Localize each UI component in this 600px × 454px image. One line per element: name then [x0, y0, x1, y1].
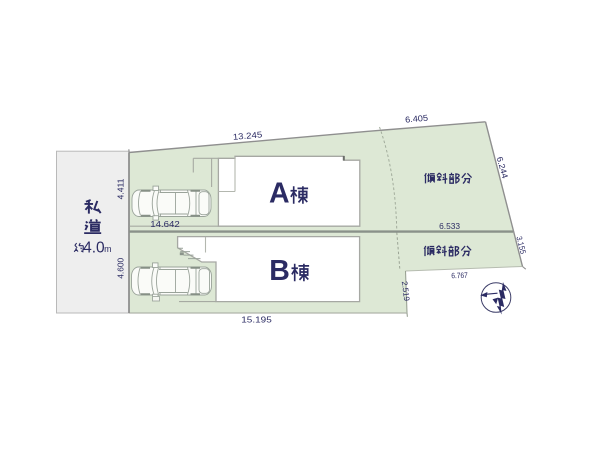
svg-text:A: A: [269, 178, 290, 210]
svg-text:4.411: 4.411: [116, 178, 126, 199]
svg-text:15.195: 15.195: [241, 315, 272, 325]
svg-text:14.642: 14.642: [150, 219, 180, 229]
svg-text:6.767: 6.767: [451, 271, 468, 280]
svg-text:m: m: [104, 244, 111, 254]
svg-text:B: B: [269, 255, 290, 287]
svg-text:6.533: 6.533: [439, 221, 460, 231]
svg-text:6.405: 6.405: [405, 113, 429, 125]
svg-text:4.0: 4.0: [83, 239, 105, 256]
svg-text:4.600: 4.600: [116, 258, 126, 279]
